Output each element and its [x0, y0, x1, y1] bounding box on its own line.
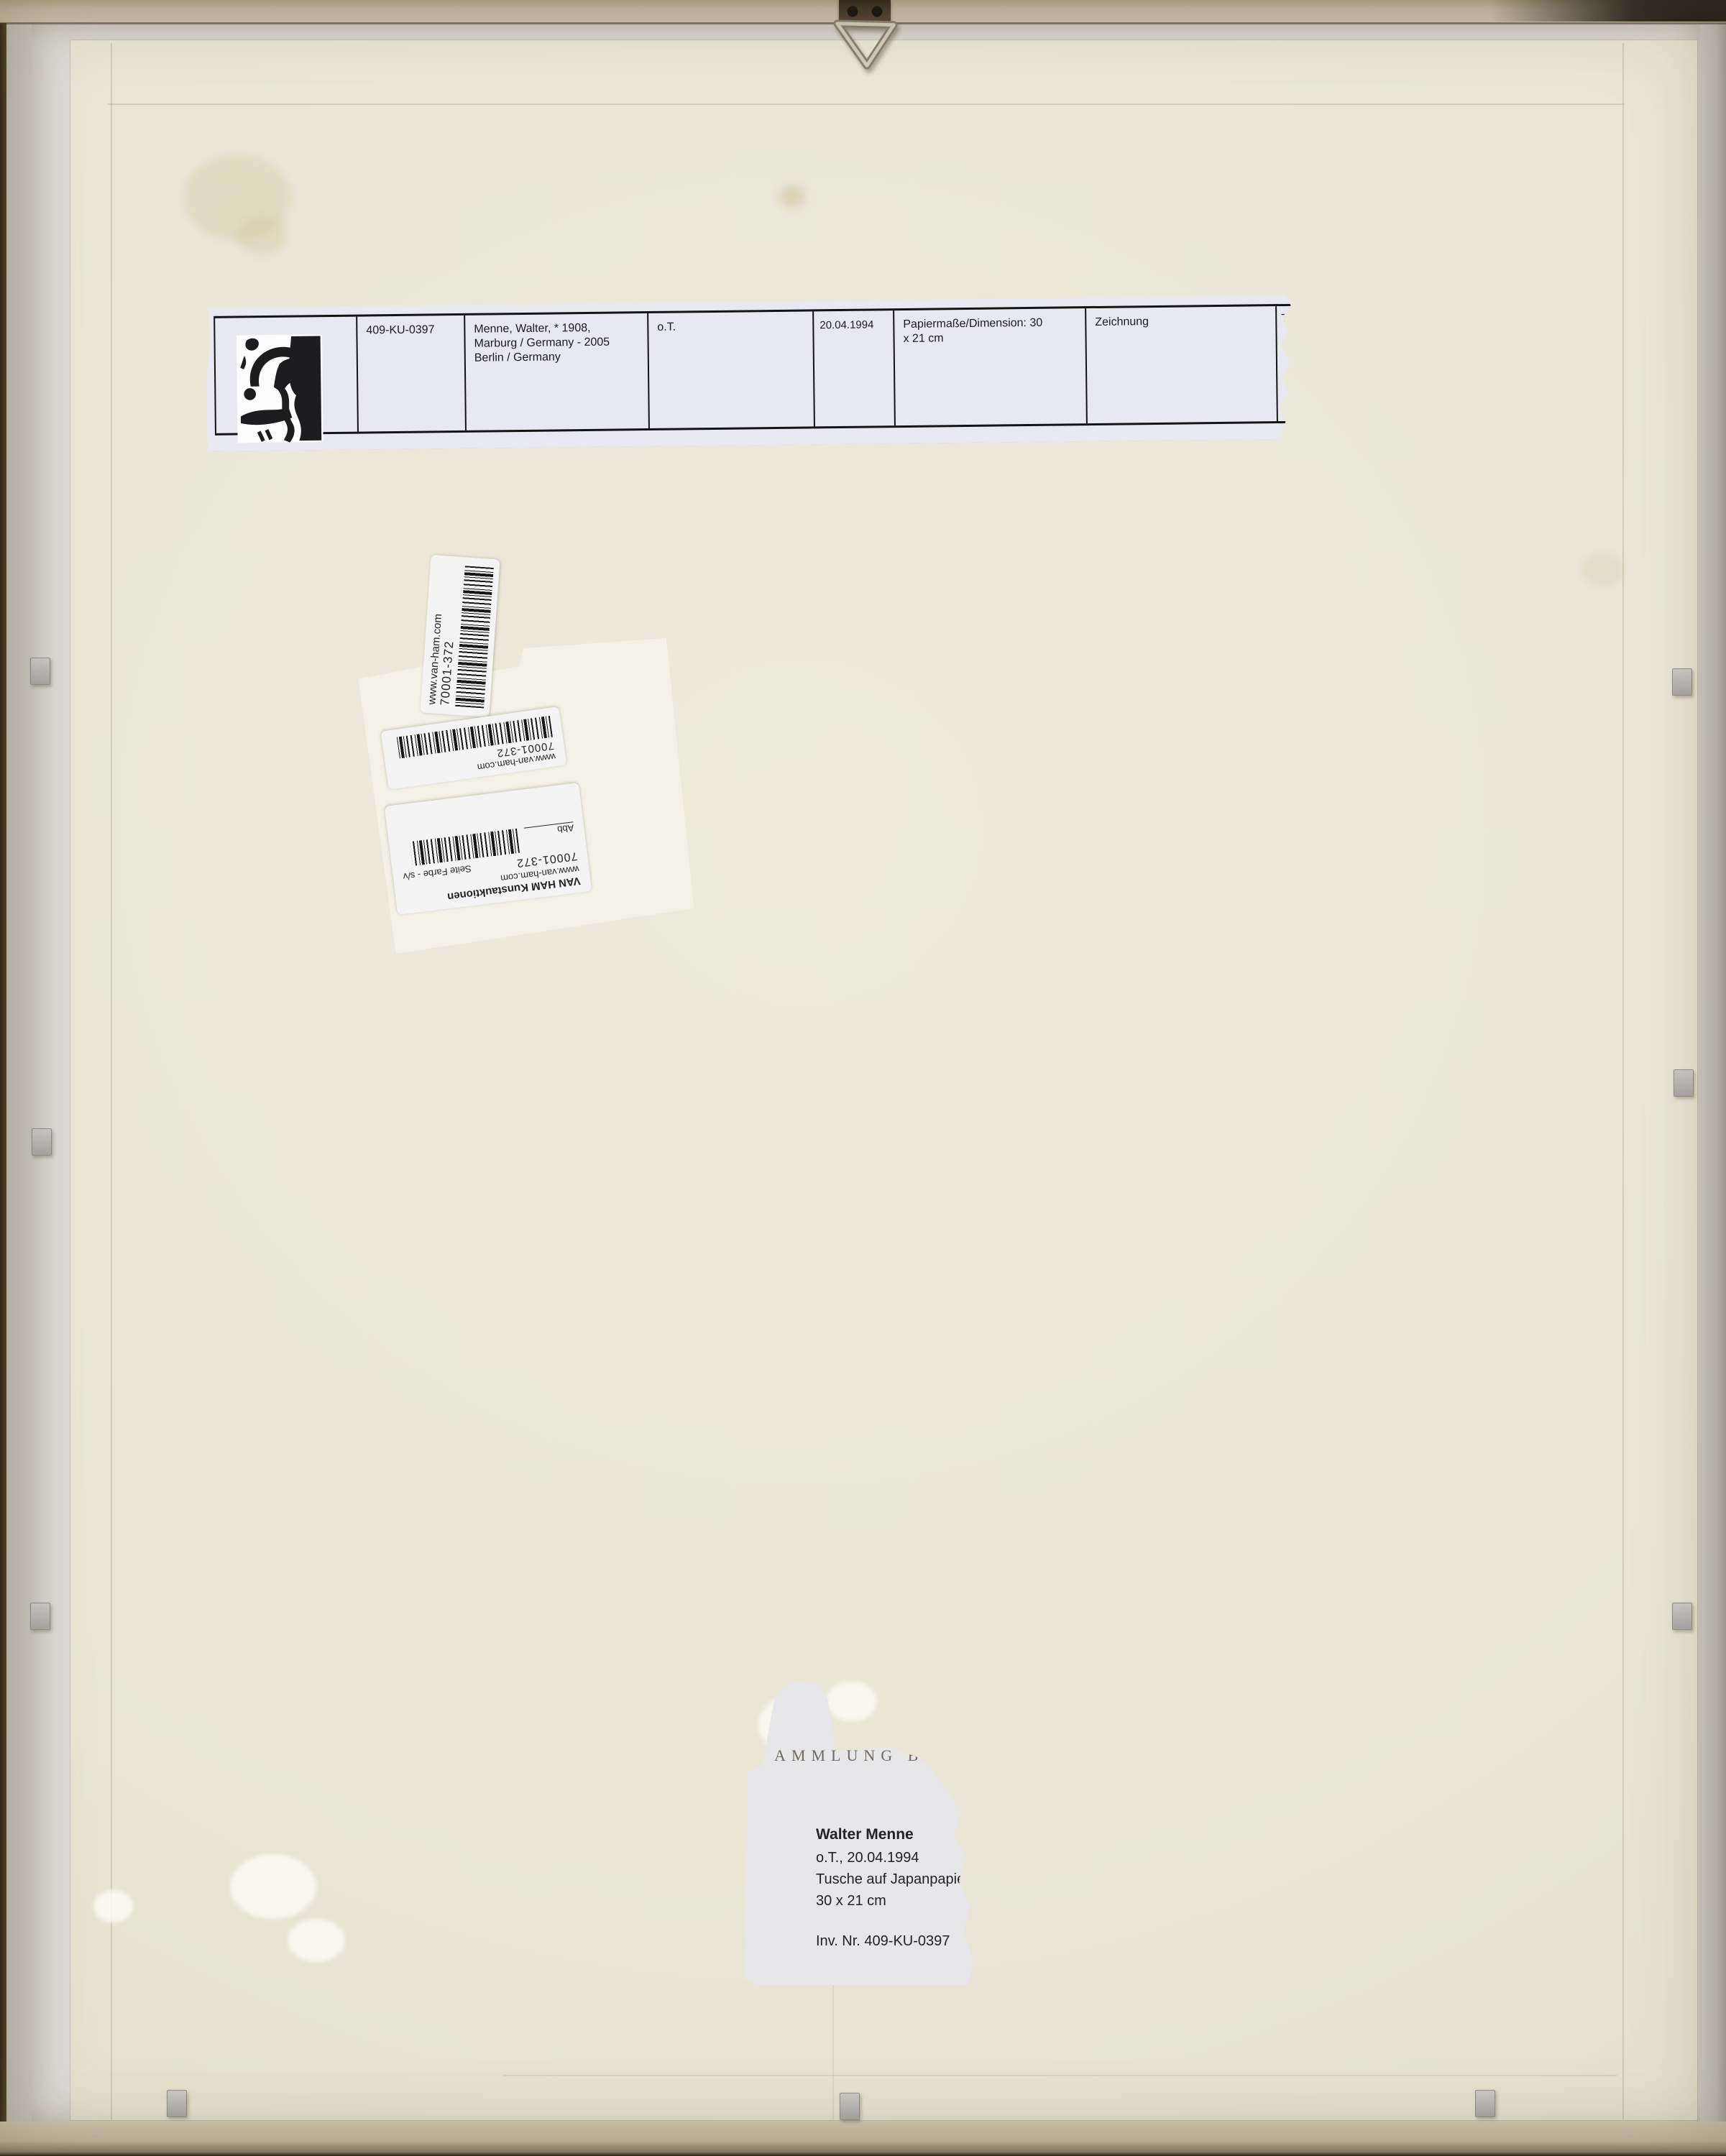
- date-cell: 20.04.1994: [812, 310, 894, 426]
- title-cell: o.T.: [647, 311, 814, 428]
- plaster-patch: [827, 1682, 877, 1721]
- stain: [1582, 553, 1625, 586]
- artist-name: Walter Menne: [816, 1824, 970, 1846]
- inventory-strip-table: 409-KU-0397 Menne, Walter, * 1908, Marbu…: [214, 304, 1293, 436]
- framer-point: [1672, 1603, 1692, 1630]
- inventory-number-cell: 409-KU-0397: [356, 315, 465, 432]
- barcode-label-vertical: www.van-ham.com 70001-372: [420, 555, 500, 717]
- artwork-thumbnail-cell: [214, 317, 357, 433]
- frame-top-shadow: [1489, 0, 1726, 22]
- framer-point: [1475, 2090, 1495, 2117]
- crease-left: [111, 43, 112, 2120]
- title-date: o.T., 20.04.1994: [816, 1847, 970, 1869]
- technique-cell: Zeichnung: [1085, 306, 1277, 423]
- crease-right: [1622, 43, 1624, 2120]
- dimensions-cell: Papiermaße/Dimension: 30 x 21 cm: [893, 308, 1086, 425]
- framer-point: [30, 658, 50, 685]
- framer-point: [30, 1603, 50, 1630]
- inventory-strip-label: 409-KU-0397 Menne, Walter, * 1908, Marbu…: [205, 295, 1293, 451]
- framed-artwork-back-photo: 409-KU-0397 Menne, Walter, * 1908, Marbu…: [0, 0, 1726, 2156]
- collection-label-text: Walter Menne o.T., 20.04.1994 Tusche auf…: [816, 1824, 970, 1952]
- frame-left-shadow: [0, 0, 6, 2156]
- hanging-ring-icon: [831, 17, 900, 75]
- frame-bottom-edge: [0, 2122, 1726, 2156]
- crease-top: [108, 103, 1625, 105]
- plaster-patch: [93, 1890, 133, 1922]
- dimensions: 30 x 21 cm: [816, 1890, 970, 1912]
- inventory-number: Inv. Nr. 409-KU-0397: [816, 1930, 970, 1952]
- barcode: [455, 566, 494, 708]
- artwork-thumbnail-image: [235, 334, 324, 443]
- framer-point: [840, 2093, 860, 2120]
- framer-point: [167, 2090, 187, 2117]
- frame-right-edge: [1697, 0, 1726, 2156]
- plaster-patch: [230, 1854, 316, 1919]
- crease-bottom: [503, 2075, 1617, 2076]
- technique: Tusche auf Japanpapier: [816, 1869, 970, 1890]
- plaster-patch: [288, 1919, 345, 1962]
- framer-point: [1674, 1069, 1694, 1097]
- stain: [237, 216, 288, 255]
- framer-point: [32, 1128, 52, 1156]
- framer-point: [1672, 668, 1692, 696]
- label-fig: Abb: [524, 821, 575, 839]
- artist-cell: Menne, Walter, * 1908, Marburg / Germany…: [464, 313, 648, 430]
- stain: [780, 185, 804, 207]
